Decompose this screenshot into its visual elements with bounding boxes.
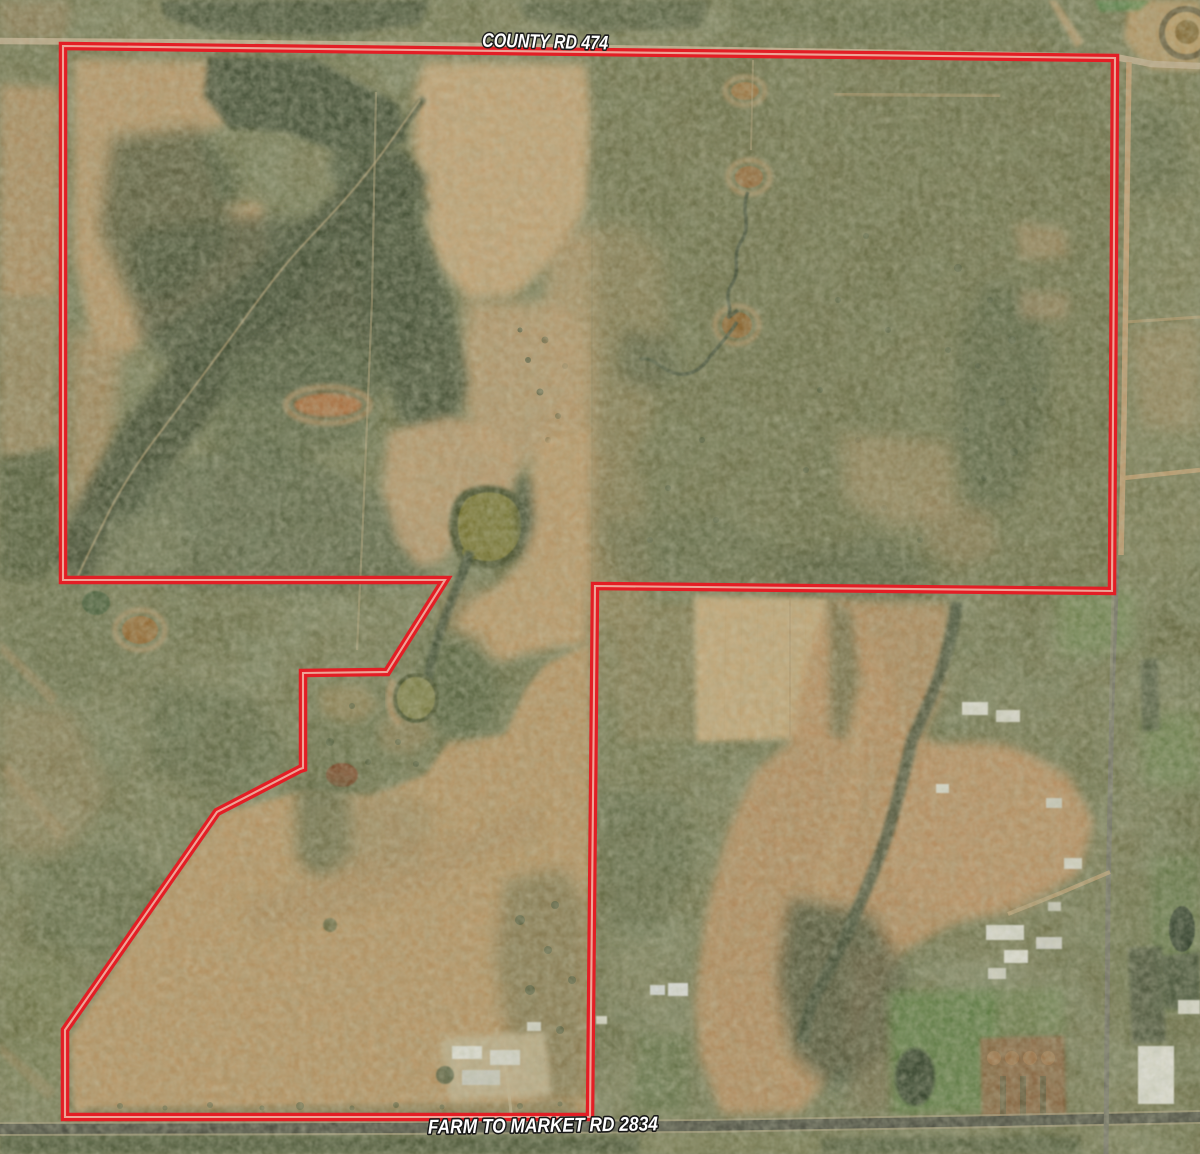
- svg-text:FARM TO MARKET RD 2834: FARM TO MARKET RD 2834: [428, 1113, 658, 1138]
- svg-text:COUNTY RD 474: COUNTY RD 474: [482, 30, 609, 55]
